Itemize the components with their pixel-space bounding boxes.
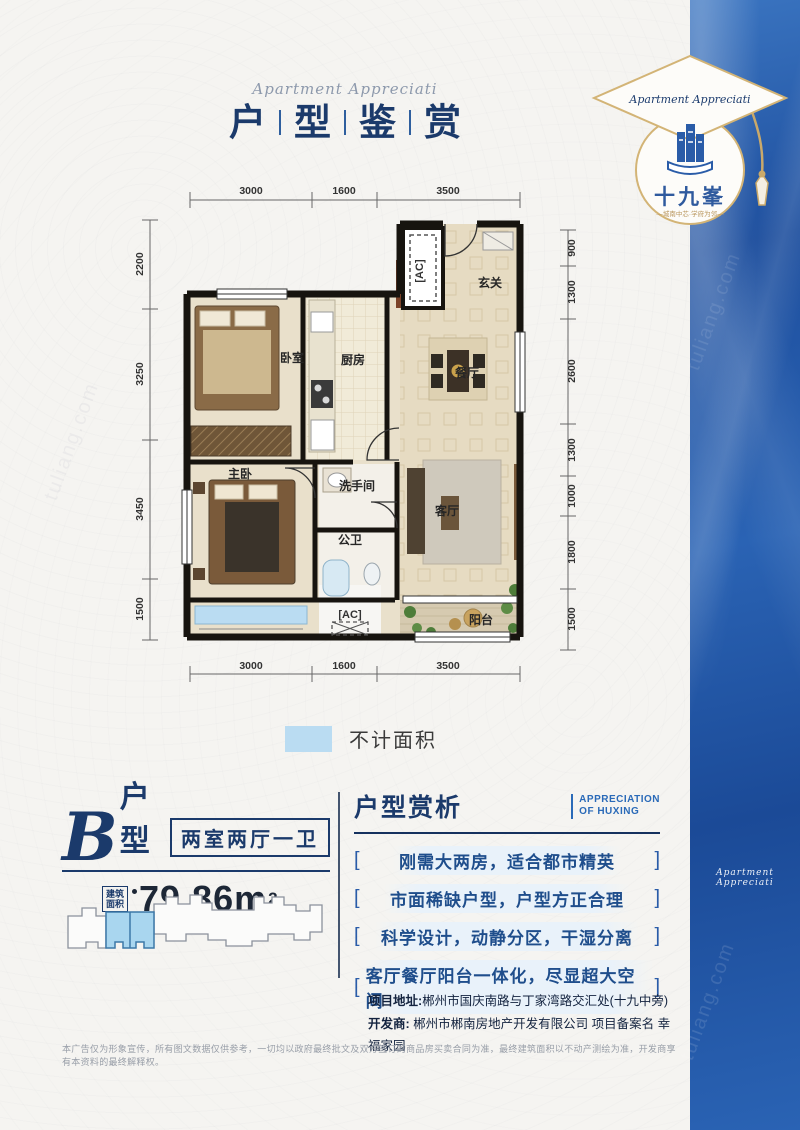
- dim-right: 900: [566, 239, 578, 257]
- dim-bottom: 3500: [436, 660, 460, 672]
- dim-top: 3500: [436, 185, 460, 197]
- room-label-washroom: 洗手间: [339, 478, 375, 493]
- bracket: [: [354, 925, 360, 948]
- bay-window-notcounted: [195, 606, 307, 624]
- analysis-point-text: 刚需大两房，适合都市精英: [393, 846, 621, 875]
- legend-swatch: [285, 726, 332, 752]
- watermark: tuliang.com: [676, 939, 740, 1064]
- room-label-balcony: 阳台: [469, 612, 493, 627]
- disclaimer: 本广告仅为形象宣传，所有图文数据仅供参考，一切均以政府最终批文及双方签订的商品房…: [62, 1042, 678, 1068]
- building-keyplan: [58, 884, 336, 960]
- dim-right: 1000: [566, 484, 578, 508]
- analysis-subtitle-line: APPRECIATION: [579, 794, 660, 805]
- dim-bottom: 1600: [332, 660, 356, 672]
- title-char: 鉴: [359, 104, 396, 141]
- room-label-living: 客厅: [434, 503, 459, 518]
- tassel-knot-icon: [759, 171, 766, 178]
- address-line: 项目地址:郴州市国庆南路与丁家湾路交汇处(十九中旁): [368, 990, 678, 1013]
- tassel-icon: [756, 174, 768, 205]
- analysis-point: [ 刚需大两房，适合都市精英 ]: [354, 846, 660, 875]
- room-label-kitchen: 厨房: [341, 352, 365, 367]
- analysis-section: 户型赏析 APPRECIATION OF HUXING [ 刚需大两房，适合都市…: [354, 788, 660, 1023]
- analysis-divider: [354, 832, 660, 834]
- dim-right: 2600: [566, 359, 578, 383]
- title-separator: [279, 110, 281, 135]
- room-label-bedroom: 卧室: [280, 350, 304, 365]
- room-label-bath: 公卫: [338, 533, 362, 547]
- ac-top-label: [AC]: [414, 259, 426, 283]
- logo-name: 十九峯: [654, 185, 726, 209]
- analysis-title: 户型赏析: [354, 788, 462, 824]
- dim-left: 1500: [134, 597, 146, 621]
- bracket: ]: [654, 887, 660, 910]
- address-value: 郴州市国庆南路与丁家湾路交汇处(十九中旁): [422, 994, 668, 1008]
- room-label-master: 主卧: [228, 466, 252, 481]
- unit-layout-badge: 两室两厅一卫: [170, 818, 330, 857]
- page-title: 户 型 鉴 赏: [0, 104, 690, 141]
- watermark: tuliang.com: [682, 249, 746, 374]
- unit-suffix: 户型: [120, 772, 156, 860]
- page-title-block: Apartment Appreciati 户 型 鉴 赏: [0, 80, 690, 141]
- logo-tagline: —城南中芯·学府为邻—: [656, 209, 724, 218]
- title-char: 型: [294, 104, 331, 141]
- title-separator: [409, 110, 411, 135]
- analysis-point: [ 科学设计，动静分区，干湿分离 ]: [354, 922, 660, 951]
- dim-top: 1600: [332, 185, 356, 197]
- developer-label: 开发商:: [368, 1017, 410, 1031]
- section-divider: [338, 792, 340, 978]
- dim-right: 1300: [566, 280, 578, 304]
- bracket: [: [354, 887, 360, 910]
- title-char: 赏: [424, 104, 461, 141]
- address-label: 项目地址:: [368, 994, 422, 1008]
- dim-right: 1800: [566, 540, 578, 564]
- bracket: [: [354, 849, 360, 872]
- ac-bottom-label: [AC]: [338, 609, 362, 621]
- dim-left: 2200: [134, 252, 146, 276]
- dim-right: 1300: [566, 438, 578, 462]
- legend-label: 不计面积: [349, 724, 437, 753]
- watermark: tuliang.com: [40, 379, 104, 504]
- room-label-entry: 玄关: [478, 275, 502, 290]
- analysis-point: [ 市面稀缺户型，户型方正合理 ]: [354, 884, 660, 913]
- floorplan: 3000 1600 3500 3000 1600 3500 2200 3250 …: [125, 172, 595, 702]
- dim-left: 3450: [134, 497, 146, 521]
- poster-page: tuliang.com tuliang.com 城南中芯·学府为邻 Apartm…: [0, 0, 800, 1130]
- legend: 不计面积: [285, 724, 437, 753]
- title-char: 户: [229, 104, 266, 141]
- sidebar-slogan: 城南中芯·学府为邻: [724, 508, 800, 875]
- tassel-cord-icon: [750, 106, 762, 174]
- title-script: Apartment Appreciati: [0, 80, 690, 98]
- room-label-dining: 餐厅: [455, 365, 479, 380]
- title-separator: [344, 110, 346, 135]
- bracket: ]: [654, 849, 660, 872]
- dim-bottom: 3000: [239, 660, 263, 672]
- sidebar-script-text: Apartment Appreciati: [690, 868, 800, 888]
- analysis-point-text: 科学设计，动静分区，干湿分离: [375, 922, 639, 951]
- dim-right: 1500: [566, 607, 578, 631]
- analysis-subtitle-line: OF HUXING: [579, 806, 639, 817]
- dim-top: 3000: [239, 185, 263, 197]
- dim-left: 3250: [134, 362, 146, 386]
- analysis-point-text: 市面稀缺户型，户型方正合理: [384, 884, 630, 913]
- analysis-subtitle: APPRECIATION OF HUXING: [571, 794, 660, 819]
- unit-letter: B: [62, 811, 118, 864]
- bracket: ]: [654, 925, 660, 948]
